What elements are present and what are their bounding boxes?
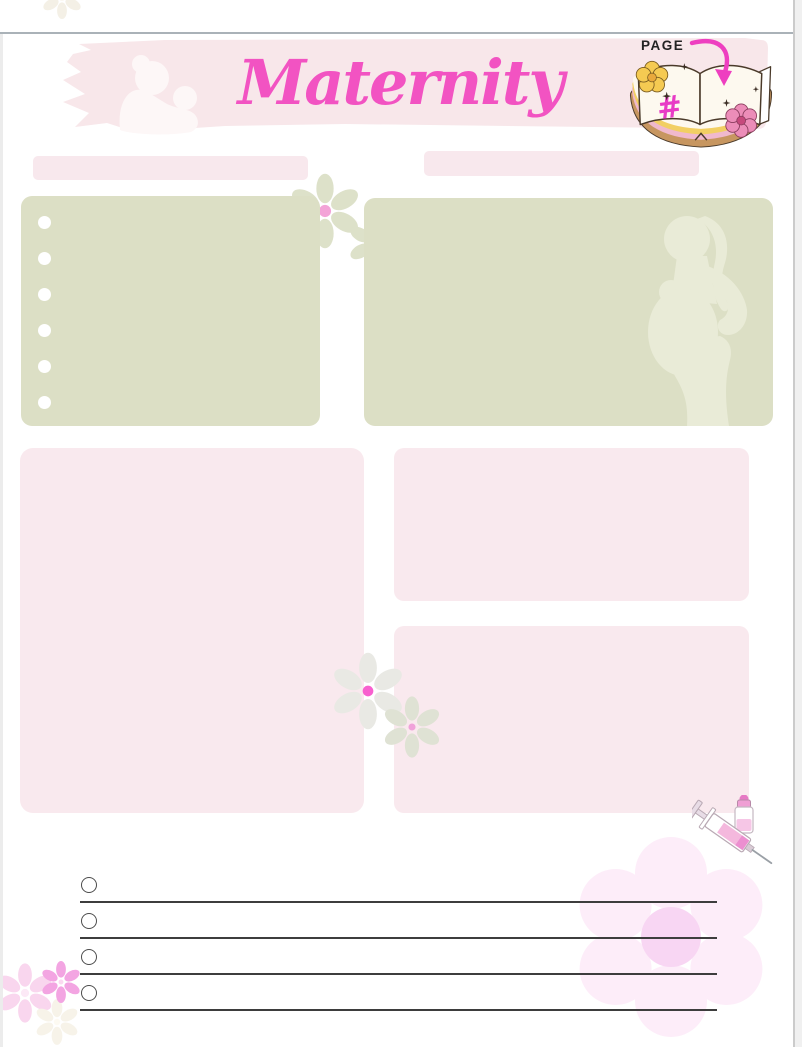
previous-page-edge	[0, 0, 793, 32]
journal-box-bottom[interactable]	[394, 626, 749, 813]
cream-flower-icon	[33, 998, 81, 1046]
journal-box-large[interactable]	[20, 448, 364, 813]
page-left-edge	[0, 34, 3, 1047]
checklist-row	[80, 939, 717, 975]
checkbox-circle[interactable]	[81, 985, 97, 1001]
bullet-dot	[38, 396, 51, 409]
bullet-dot	[38, 360, 51, 373]
checklist-row	[80, 903, 717, 939]
sage-flower-icon	[380, 695, 444, 759]
page-number-placeholder[interactable]: #	[655, 89, 685, 127]
checklist-row	[80, 867, 717, 903]
bullet-list	[38, 216, 51, 409]
page-number-label: PAGE	[641, 38, 684, 53]
left-label-field[interactable]	[33, 156, 308, 180]
page-title: Maternity	[180, 50, 620, 115]
maternity-planner-page: Maternity PAGE #	[0, 0, 802, 1047]
flower-icon	[40, 0, 84, 20]
page-boundary-line	[0, 32, 793, 34]
canvas-gutter	[793, 0, 802, 1047]
checkbox-circle[interactable]	[81, 949, 97, 965]
checkbox-circle[interactable]	[81, 913, 97, 929]
notes-box[interactable]	[21, 196, 320, 426]
pink-flower-icon	[726, 104, 757, 137]
bright-pink-flower-icon	[39, 960, 83, 1004]
checklist-writing-line[interactable]	[80, 1009, 717, 1011]
journal-box-top[interactable]	[394, 448, 749, 601]
right-label-field[interactable]	[424, 151, 699, 176]
bullet-dot	[38, 252, 51, 265]
vial	[735, 795, 753, 833]
bullet-dot	[38, 216, 51, 229]
photo-box[interactable]	[364, 198, 773, 426]
checklist-row	[80, 975, 717, 1011]
checklist	[80, 867, 717, 1011]
bullet-dot	[38, 288, 51, 301]
pregnant-woman-silhouette-icon	[639, 212, 771, 426]
curved-arrow-icon	[686, 34, 744, 92]
checkbox-circle[interactable]	[81, 877, 97, 893]
bullet-dot	[38, 324, 51, 337]
